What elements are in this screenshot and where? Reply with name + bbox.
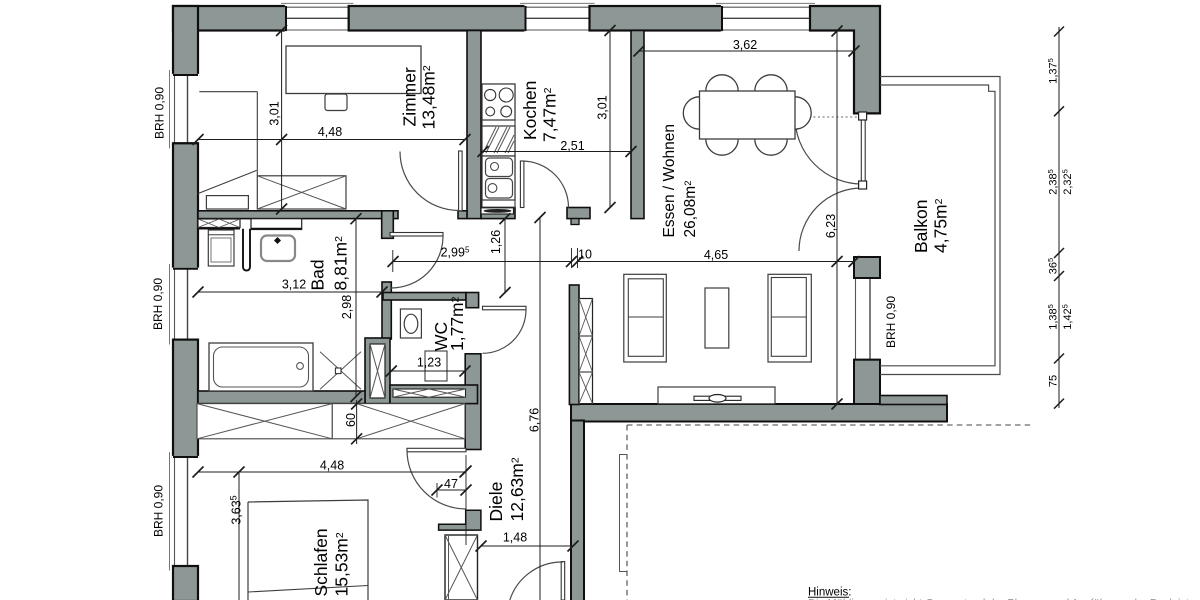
svg-text:7,47m2: 7,47m2 (540, 87, 560, 142)
svg-text:4,75m2: 4,75m2 (931, 198, 951, 253)
svg-text:2,98: 2,98 (340, 295, 354, 319)
svg-text:1,77m2: 1,77m2 (447, 296, 467, 351)
svg-text:10: 10 (578, 248, 592, 262)
svg-text:4,48: 4,48 (318, 125, 342, 139)
svg-text:Kochen: Kochen (520, 81, 540, 140)
svg-text:75: 75 (1048, 375, 1060, 387)
svg-text:Zimmer: Zimmer (400, 67, 420, 126)
svg-text:3,12: 3,12 (282, 278, 306, 292)
svg-text:8,81m2: 8,81m2 (330, 236, 350, 291)
svg-text:Balkon: Balkon (911, 199, 931, 253)
svg-text:3,01: 3,01 (268, 101, 282, 125)
svg-text:BRH 0,90: BRH 0,90 (151, 278, 165, 330)
svg-text:47: 47 (444, 477, 458, 491)
svg-text:3,01: 3,01 (596, 95, 610, 119)
svg-text:Essen / Wohnen: Essen / Wohnen (661, 124, 678, 237)
svg-text:BRH 0,90: BRH 0,90 (153, 87, 167, 139)
svg-text:12,63m2: 12,63m2 (507, 457, 527, 521)
svg-text:BRH 0,90: BRH 0,90 (884, 296, 898, 348)
svg-text:1,48: 1,48 (503, 531, 527, 545)
svg-text:4,48: 4,48 (320, 459, 344, 473)
svg-text:Bad: Bad (307, 259, 327, 290)
svg-text:6,23: 6,23 (824, 214, 838, 238)
svg-text:4,65: 4,65 (704, 248, 728, 262)
svg-text:1,23: 1,23 (417, 356, 441, 370)
svg-text:2,51: 2,51 (560, 139, 584, 153)
svg-text:3,62: 3,62 (733, 38, 757, 52)
svg-text:6,76: 6,76 (528, 408, 542, 432)
svg-text:BRH 0,90: BRH 0,90 (152, 485, 166, 537)
svg-text:60: 60 (344, 413, 358, 427)
svg-text:26,08m2: 26,08m2 (682, 181, 699, 238)
svg-text:15,53m2: 15,53m2 (332, 532, 352, 596)
svg-text:Schlafen: Schlafen (311, 528, 331, 596)
svg-text:1,26: 1,26 (489, 230, 503, 254)
svg-text:Diele: Diele (486, 482, 506, 522)
svg-text:13,48m2: 13,48m2 (419, 65, 439, 129)
